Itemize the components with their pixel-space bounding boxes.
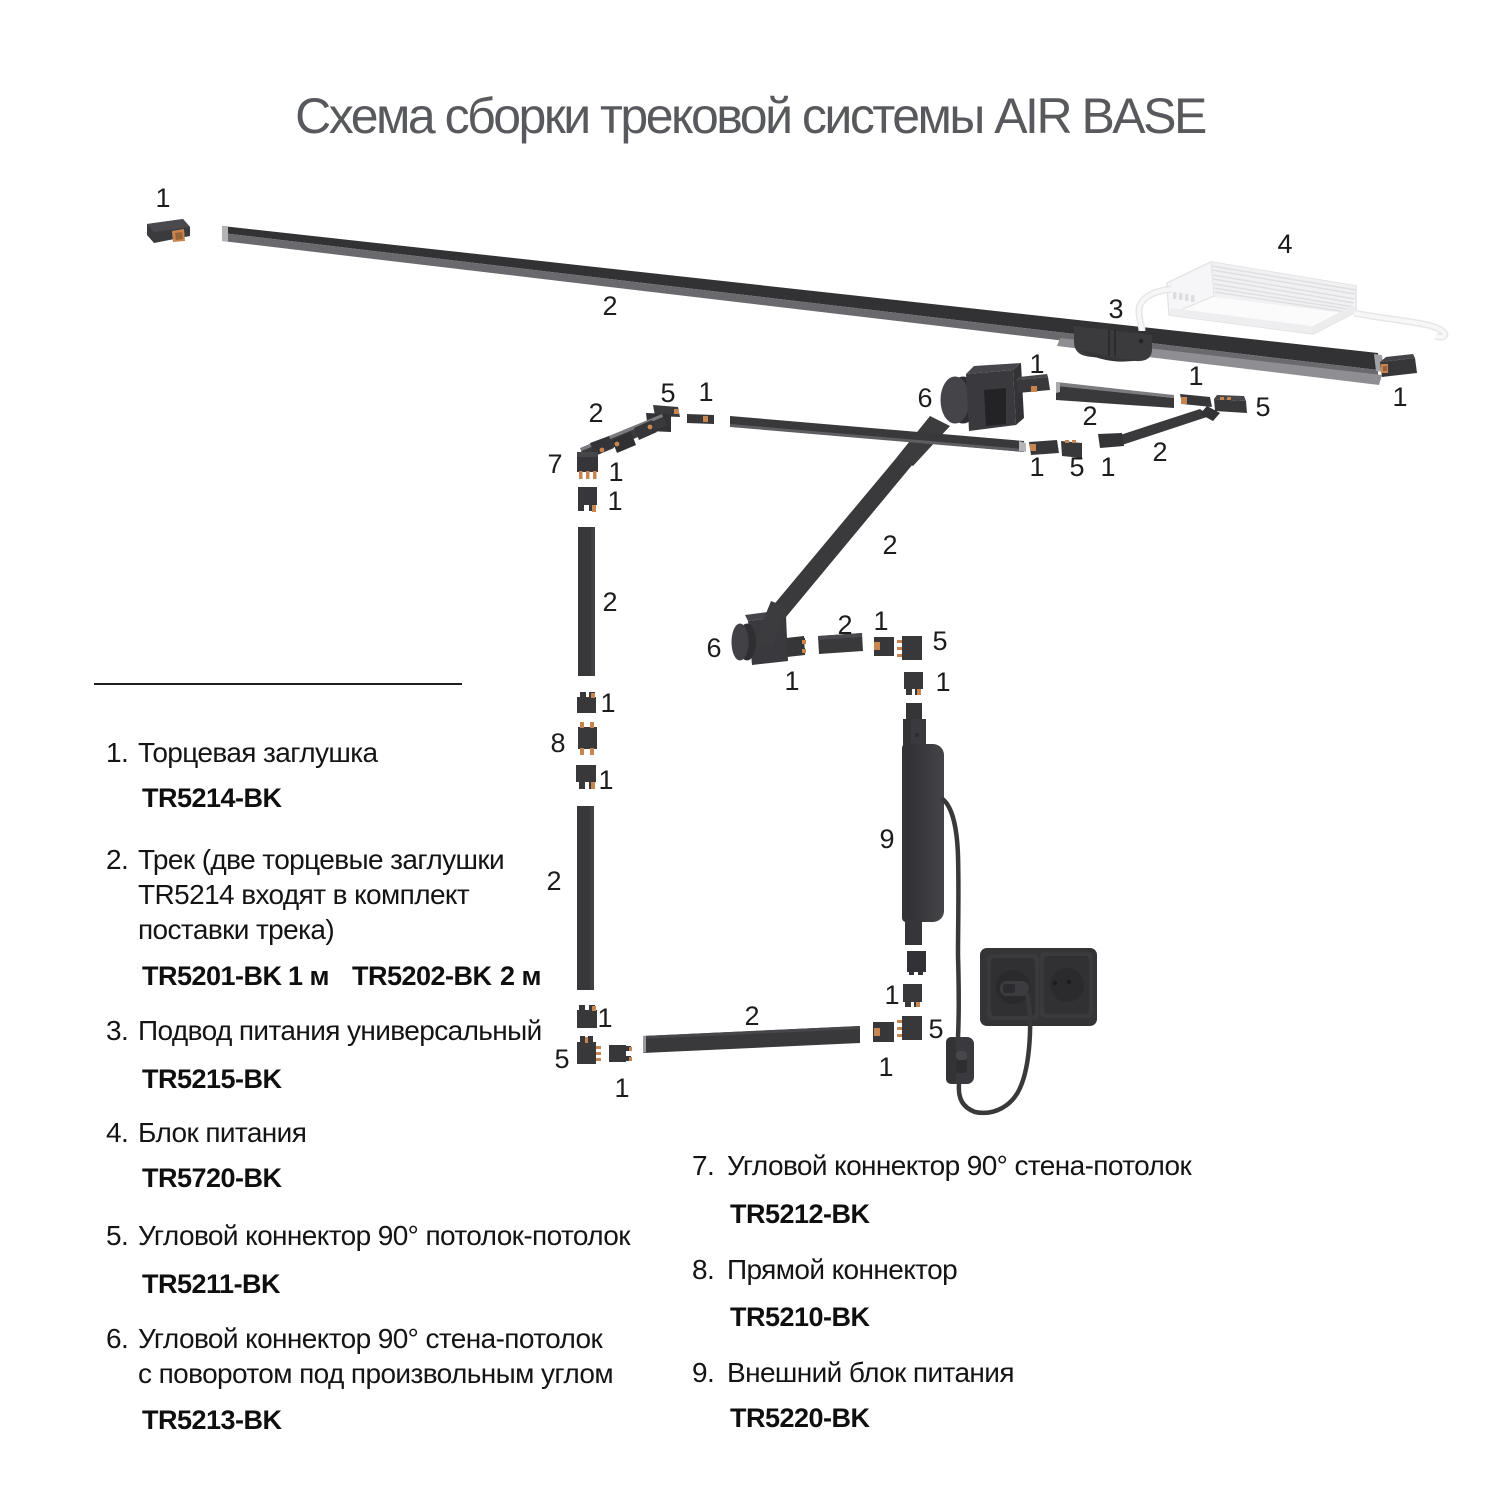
svg-text:1: 1 <box>598 765 613 795</box>
svg-text:2: 2 <box>882 530 897 560</box>
svg-text:1: 1 <box>1188 361 1203 391</box>
svg-text:Трек (две торцевые заглушки: Трек (две торцевые заглушки <box>138 844 504 875</box>
svg-text:5: 5 <box>554 1044 569 1074</box>
svg-text:7: 7 <box>547 449 562 479</box>
svg-text:6.: 6. <box>106 1323 128 1354</box>
svg-text:4: 4 <box>1277 229 1292 259</box>
svg-text:6: 6 <box>917 383 932 413</box>
svg-text:2: 2 <box>588 398 603 428</box>
svg-text:Внешний блок питания: Внешний блок питания <box>727 1357 1014 1388</box>
svg-text:TR5212-BK: TR5212-BK <box>730 1199 871 1229</box>
svg-text:1: 1 <box>614 1073 629 1103</box>
svg-text:1: 1 <box>1392 382 1407 412</box>
svg-text:5: 5 <box>660 378 675 408</box>
svg-text:Блок питания: Блок питания <box>138 1117 306 1148</box>
svg-text:с поворотом под произвольным у: с поворотом под произвольным углом <box>138 1358 613 1389</box>
svg-text:TR5215-BK: TR5215-BK <box>142 1064 283 1094</box>
svg-text:5: 5 <box>1255 392 1270 422</box>
svg-text:2: 2 <box>1082 401 1097 431</box>
svg-text:2: 2 <box>546 866 561 896</box>
svg-text:1: 1 <box>597 1003 612 1033</box>
svg-text:1: 1 <box>935 667 950 697</box>
svg-text:5.: 5. <box>106 1220 128 1251</box>
svg-text:TR5211-BK: TR5211-BK <box>142 1269 281 1299</box>
svg-text:5: 5 <box>932 626 947 656</box>
svg-text:1: 1 <box>698 377 713 407</box>
svg-text:8: 8 <box>550 728 565 758</box>
svg-text:3.: 3. <box>106 1015 128 1046</box>
svg-text:Подвод питания универсальный: Подвод питания универсальный <box>138 1015 542 1046</box>
svg-text:1: 1 <box>1100 452 1115 482</box>
svg-text:1.: 1. <box>106 737 128 768</box>
svg-text:Угловой коннектор 90° потолок-: Угловой коннектор 90° потолок-потолок <box>138 1220 631 1251</box>
svg-text:TR5213-BK: TR5213-BK <box>142 1405 283 1435</box>
svg-text:1: 1 <box>1029 349 1044 379</box>
svg-text:2.: 2. <box>106 844 128 875</box>
svg-text:1: 1 <box>608 457 623 487</box>
svg-text:4.: 4. <box>106 1117 128 1148</box>
svg-text:Угловой коннектор 90° стена-по: Угловой коннектор 90° стена-потолок <box>727 1150 1193 1181</box>
svg-text:поставки трека): поставки трека) <box>138 914 334 945</box>
svg-text:1: 1 <box>1029 452 1044 482</box>
svg-text:2: 2 <box>602 587 617 617</box>
svg-text:1: 1 <box>878 1052 893 1082</box>
svg-text:1: 1 <box>600 688 615 718</box>
svg-text:TR5720-BK: TR5720-BK <box>142 1163 283 1193</box>
svg-text:2: 2 <box>744 1001 759 1031</box>
svg-text:1: 1 <box>784 666 799 696</box>
svg-text:6: 6 <box>706 633 721 663</box>
svg-text:2: 2 <box>602 291 617 321</box>
svg-text:2: 2 <box>1152 437 1167 467</box>
svg-text:5: 5 <box>1069 452 1084 482</box>
svg-text:1: 1 <box>884 980 899 1010</box>
svg-text:9: 9 <box>879 824 894 854</box>
svg-text:9.: 9. <box>692 1357 714 1388</box>
svg-text:1: 1 <box>155 183 170 213</box>
svg-text:TR5214 входят в комплект: TR5214 входят в комплект <box>138 879 470 910</box>
svg-text:TR5214-BK: TR5214-BK <box>142 783 283 813</box>
svg-text:8.: 8. <box>692 1254 714 1285</box>
svg-text:7.: 7. <box>692 1150 714 1181</box>
svg-text:5: 5 <box>928 1014 943 1044</box>
svg-text:2: 2 <box>837 610 852 640</box>
svg-text:1: 1 <box>873 606 888 636</box>
svg-text:TR5210-BK: TR5210-BK <box>730 1302 871 1332</box>
svg-text:TR5220-BK: TR5220-BK <box>730 1403 871 1433</box>
svg-text:3: 3 <box>1108 294 1123 324</box>
svg-text:Торцевая заглушка: Торцевая заглушка <box>138 737 379 768</box>
svg-text:Прямой коннектор: Прямой коннектор <box>727 1254 957 1285</box>
svg-text:Угловой коннектор 90° стена-по: Угловой коннектор 90° стена-потолок <box>138 1323 604 1354</box>
svg-text:Схема сборки трековой системы: Схема сборки трековой системы AIR BASE <box>295 88 1206 144</box>
svg-text:1: 1 <box>607 486 622 516</box>
